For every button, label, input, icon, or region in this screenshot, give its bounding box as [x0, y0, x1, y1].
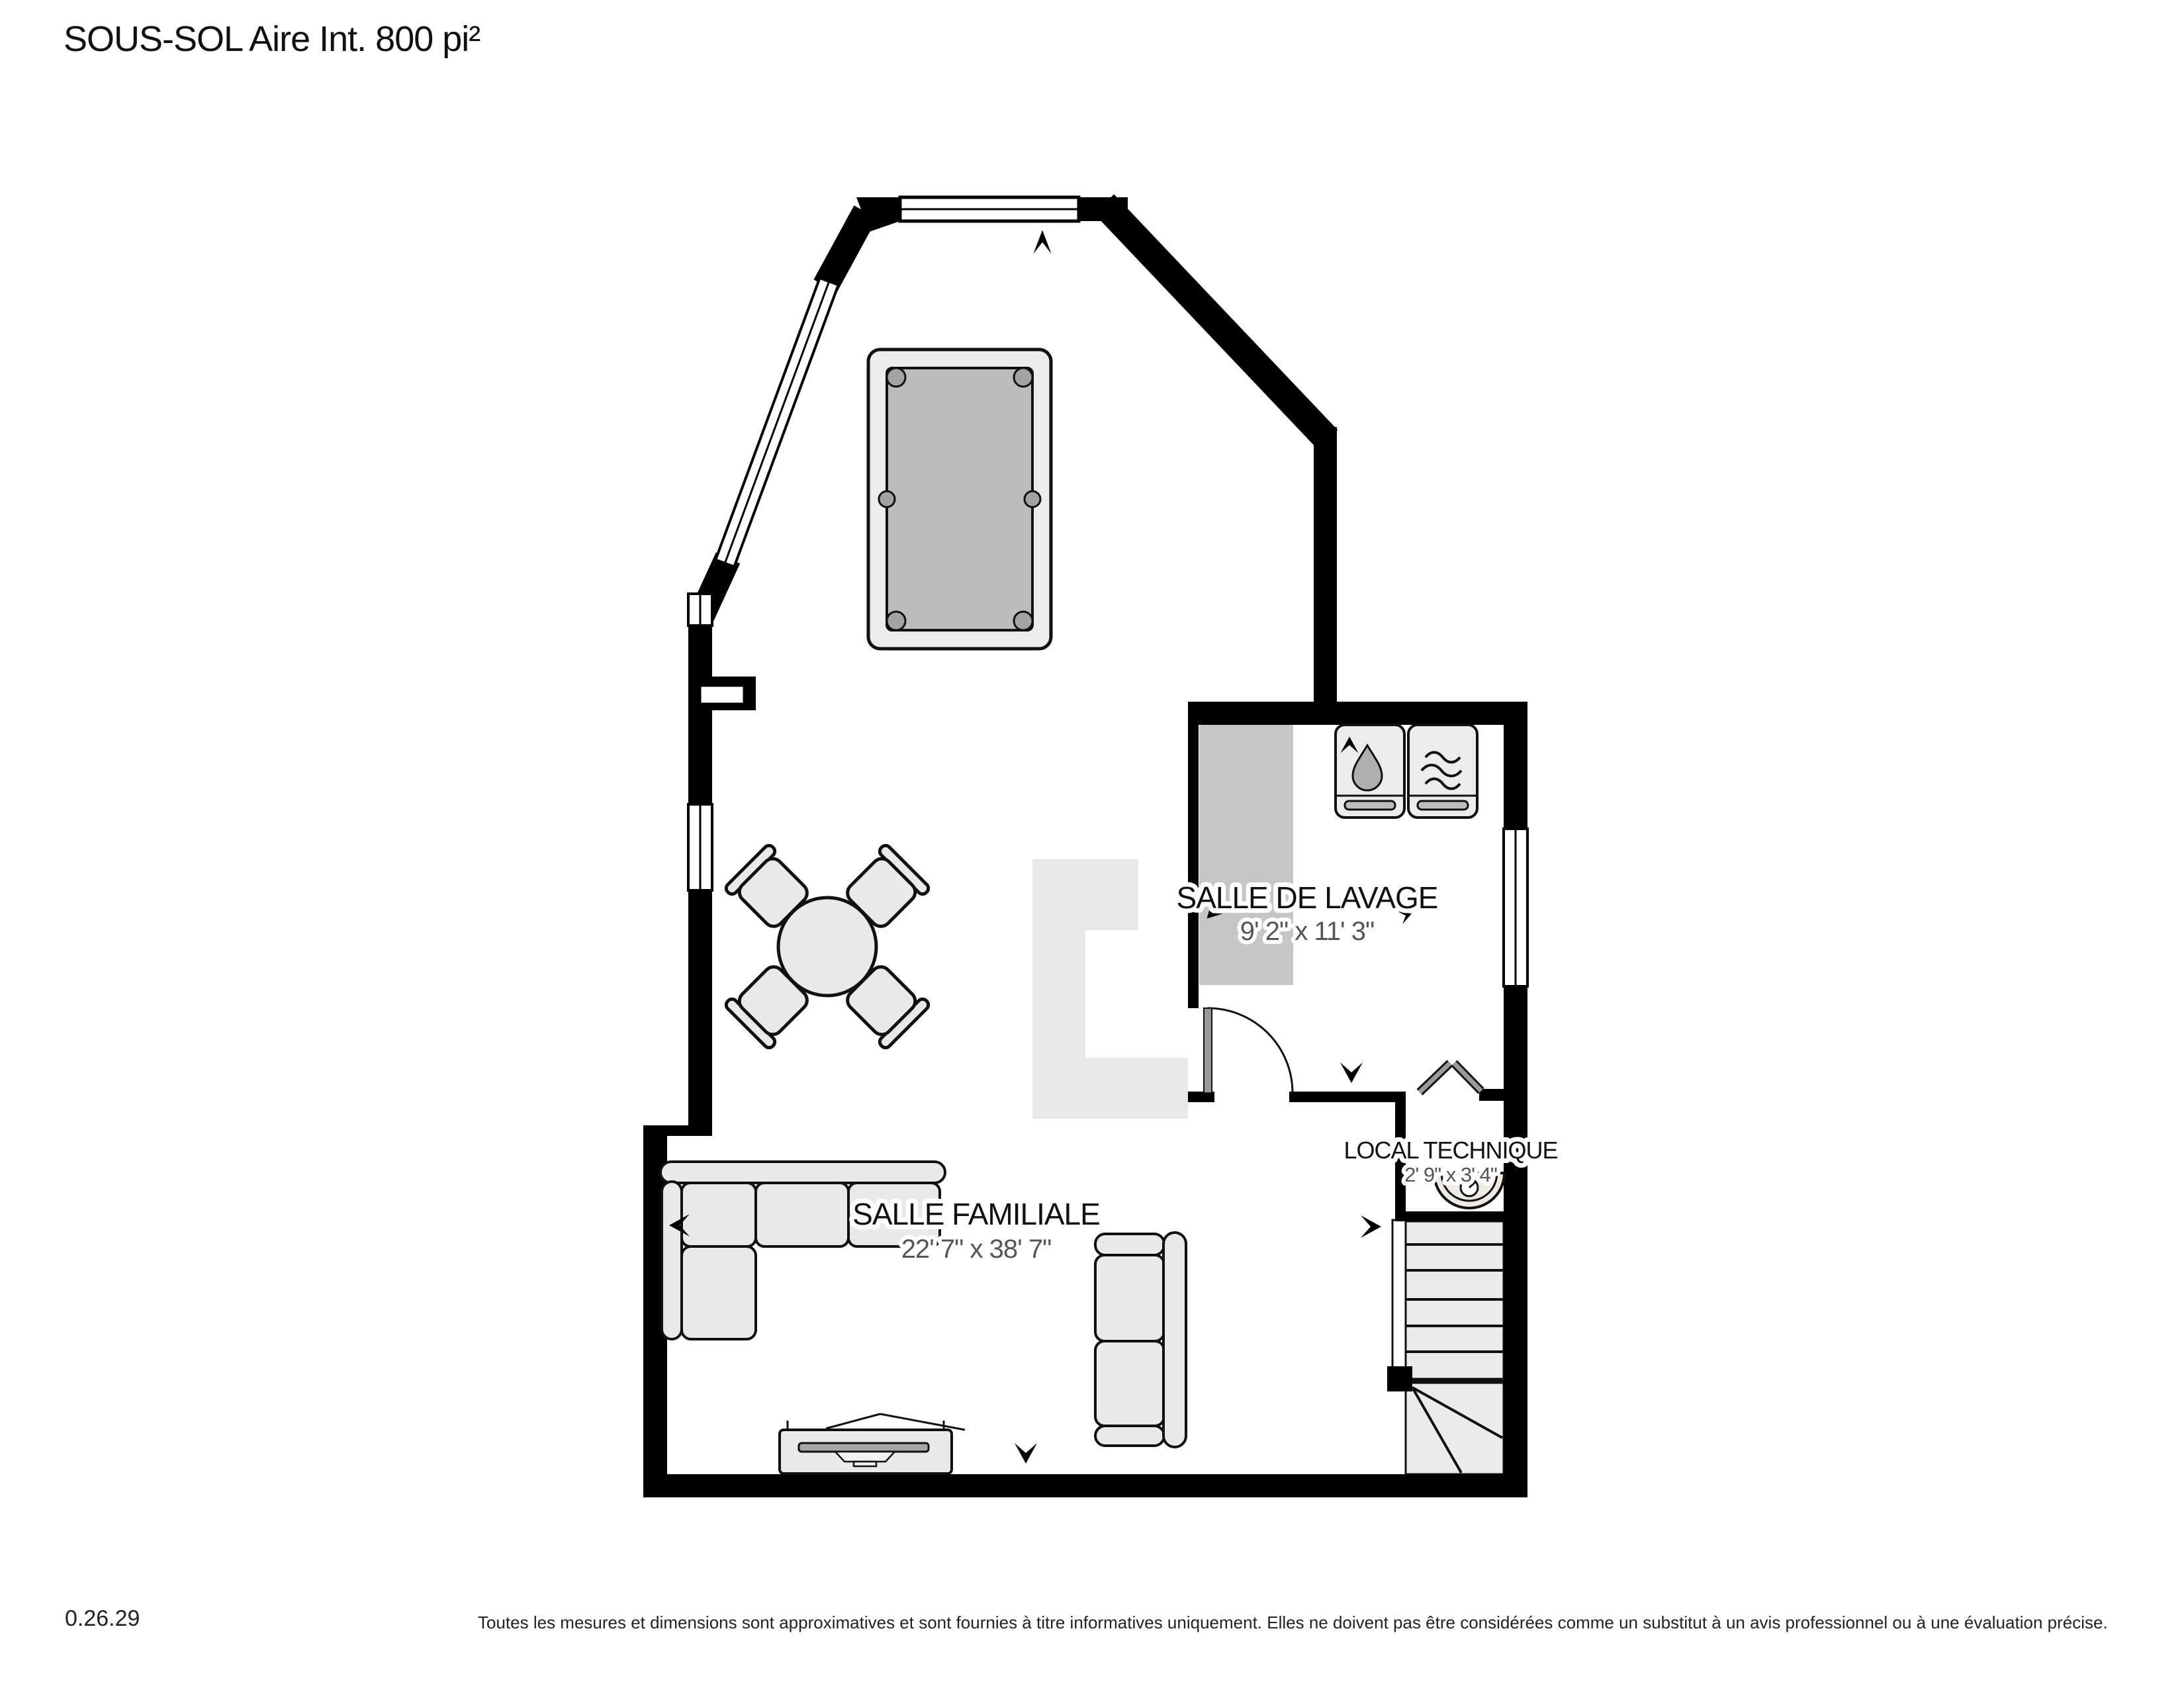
technical-room-dimensions: 2' 9" x 3' 4": [1404, 1163, 1497, 1186]
family-room-dimensions: 22' 7" x 38' 7": [901, 1235, 1052, 1264]
dining-table-icon: [778, 898, 876, 996]
laundry-door: [1204, 1008, 1293, 1093]
family-room-label: SALLE FAMILIALE: [852, 1197, 1100, 1231]
washer-icon: [1336, 725, 1404, 818]
laundry-room-dimensions: 9' 2" x 11' 3": [1240, 917, 1374, 946]
pool-table-icon: [868, 350, 1051, 649]
open-area-shape: [1032, 859, 1188, 1119]
door-swing-icon: [1208, 1008, 1293, 1093]
tv-stand-icon: [780, 1414, 965, 1474]
window-icon: [1504, 829, 1527, 986]
door-leaf: [1204, 1008, 1212, 1093]
stair-railing: [1392, 1220, 1406, 1370]
dining-set: [724, 843, 931, 1050]
window-icon: [725, 283, 829, 562]
laundry-counter: [1199, 725, 1293, 985]
direction-arrow-icon: [1340, 1062, 1363, 1083]
loveseat-icon: [1095, 1233, 1186, 1447]
window-icon: [900, 197, 1079, 221]
floor-plan-drawing: SALLE DE LAVAGE 9' 2" x 11' 3" SALLE FAM…: [0, 0, 2184, 1688]
direction-arrow-icon: [1361, 1215, 1381, 1238]
fireplace-niche: [700, 686, 744, 704]
direction-arrow-icon: [1033, 230, 1051, 254]
version-number: 0.26.29: [65, 1606, 140, 1632]
direction-arrow-icon: [1015, 1443, 1037, 1464]
dryer-icon: [1408, 725, 1477, 818]
laundry-room-label: SALLE DE LAVAGE: [1177, 880, 1438, 915]
bifold-door-icon: [1420, 1063, 1481, 1092]
floor-plan-page: SOUS-SOL Aire Int. 800 pi²: [0, 0, 2184, 1688]
tv-icon: [799, 1443, 929, 1452]
disclaimer-text: Toutes les mesures et dimensions sont ap…: [478, 1613, 2108, 1633]
window-icon: [688, 594, 712, 626]
stairs-icon: [1387, 1220, 1504, 1474]
stair-post: [1387, 1366, 1412, 1391]
technical-room-label: LOCAL TECHNIQUE: [1343, 1137, 1557, 1164]
window-icon: [688, 804, 712, 890]
